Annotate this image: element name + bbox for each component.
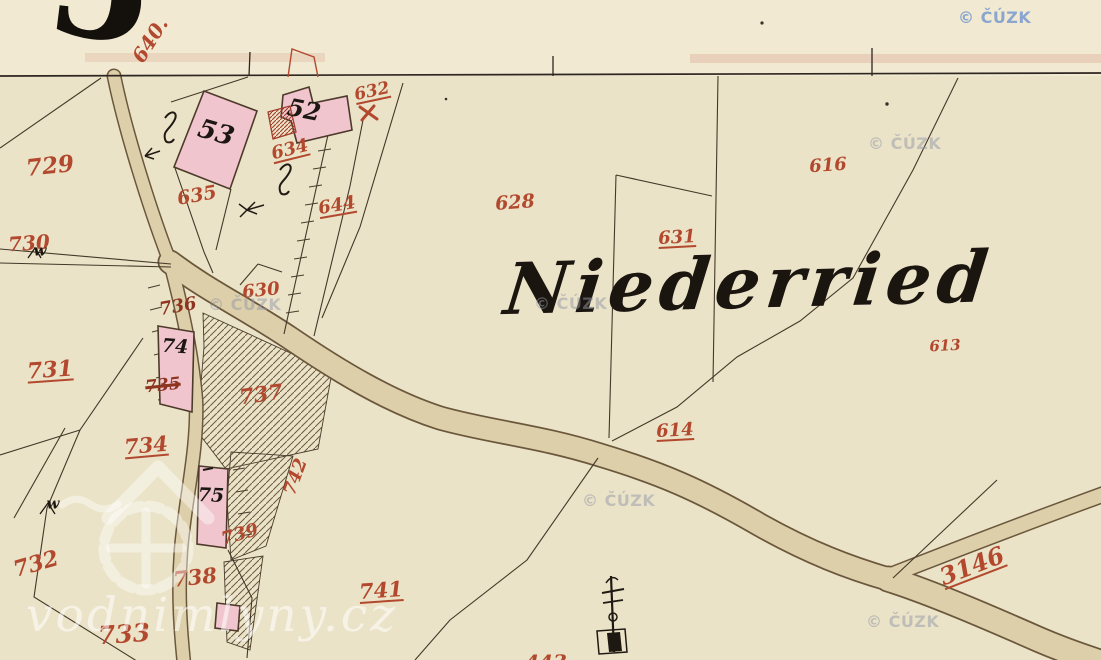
spring-arrow-symbol <box>239 164 291 217</box>
cuzk-watermark-2: © ČÚZK <box>868 134 941 153</box>
cuzk-watermark-5: © ČÚZK <box>582 491 655 510</box>
building-52-annex-hatched <box>268 106 296 139</box>
cuzk-watermark-1: © ČÚZK <box>958 8 1031 27</box>
garden-flourish-symbol <box>145 112 176 159</box>
map-linework <box>0 0 1101 660</box>
red-bleed-bands <box>85 53 1101 63</box>
map-surface[interactable]: 5 Niederried 640.72973073173273373473573… <box>0 0 1101 660</box>
building-53-footprint <box>174 91 257 189</box>
building-75-footprint <box>197 466 228 548</box>
map-symbols <box>28 21 889 654</box>
vodnimlyny-watermark-text: vodnimlyny.cz <box>26 588 398 643</box>
building-74-footprint <box>158 326 194 412</box>
place-name-niederried: Niederried <box>500 231 1101 331</box>
boundary-zigzag-marks <box>28 248 55 514</box>
cuzk-watermark-4: © ČÚZK <box>534 294 607 313</box>
cross-monument-symbol <box>597 576 627 654</box>
cuzk-watermark-6: © ČÚZK <box>866 612 939 631</box>
cuzk-watermark-3: © ČÚZK <box>208 295 281 314</box>
